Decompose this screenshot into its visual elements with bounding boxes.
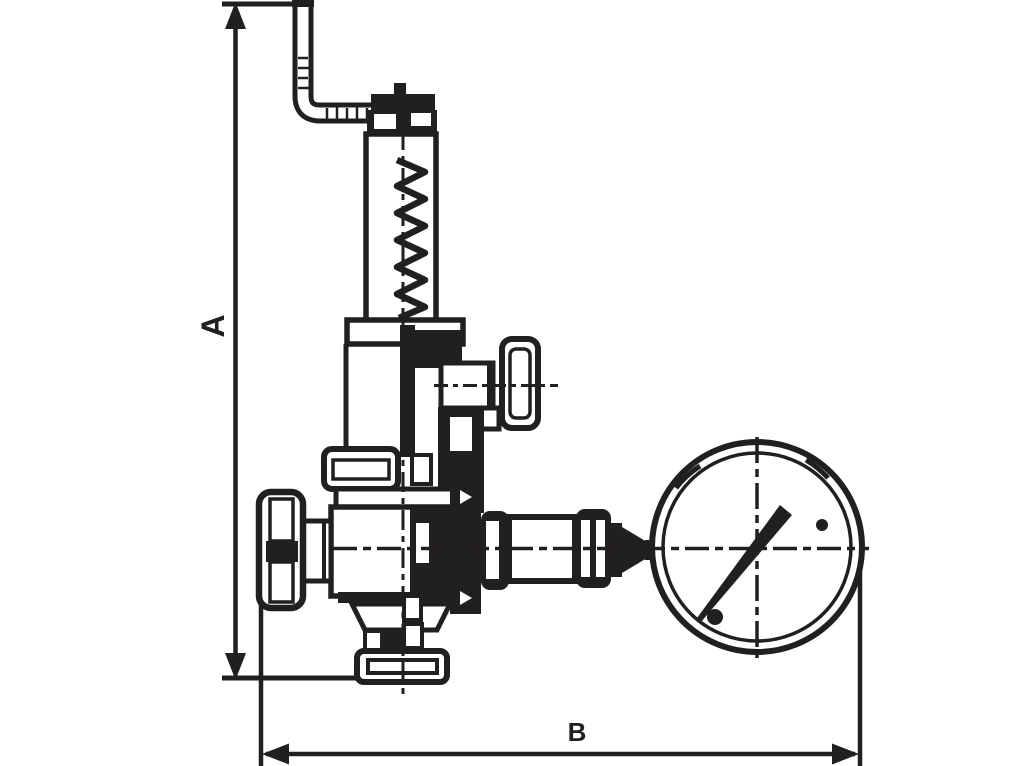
union-nut-body: [324, 449, 398, 489]
valve-dimension-drawing: A B: [0, 0, 1024, 766]
packing-block: [412, 455, 431, 484]
cap-window-right: [411, 113, 431, 126]
spigot-lower: [404, 624, 422, 648]
cap-window-left: [374, 114, 396, 129]
body-bottom-flange: [338, 592, 460, 603]
left-handwheel: [259, 492, 303, 608]
handwheel-hub: [266, 541, 298, 562]
outlet-cone: [352, 604, 450, 630]
union-nut: [324, 449, 431, 489]
dimension-label-a: A: [195, 314, 231, 337]
needle-hub-dot: [707, 609, 723, 625]
lever-end-cap: [292, 0, 314, 7]
spigot-upper: [404, 596, 421, 620]
test-handwheel: [502, 339, 538, 428]
body-right-slot: [416, 523, 429, 563]
down-channel-slot: [450, 417, 472, 451]
dimension-label-b: B: [568, 717, 587, 747]
dial-dot: [816, 519, 828, 531]
drawing-canvas: A B: [0, 0, 1024, 766]
